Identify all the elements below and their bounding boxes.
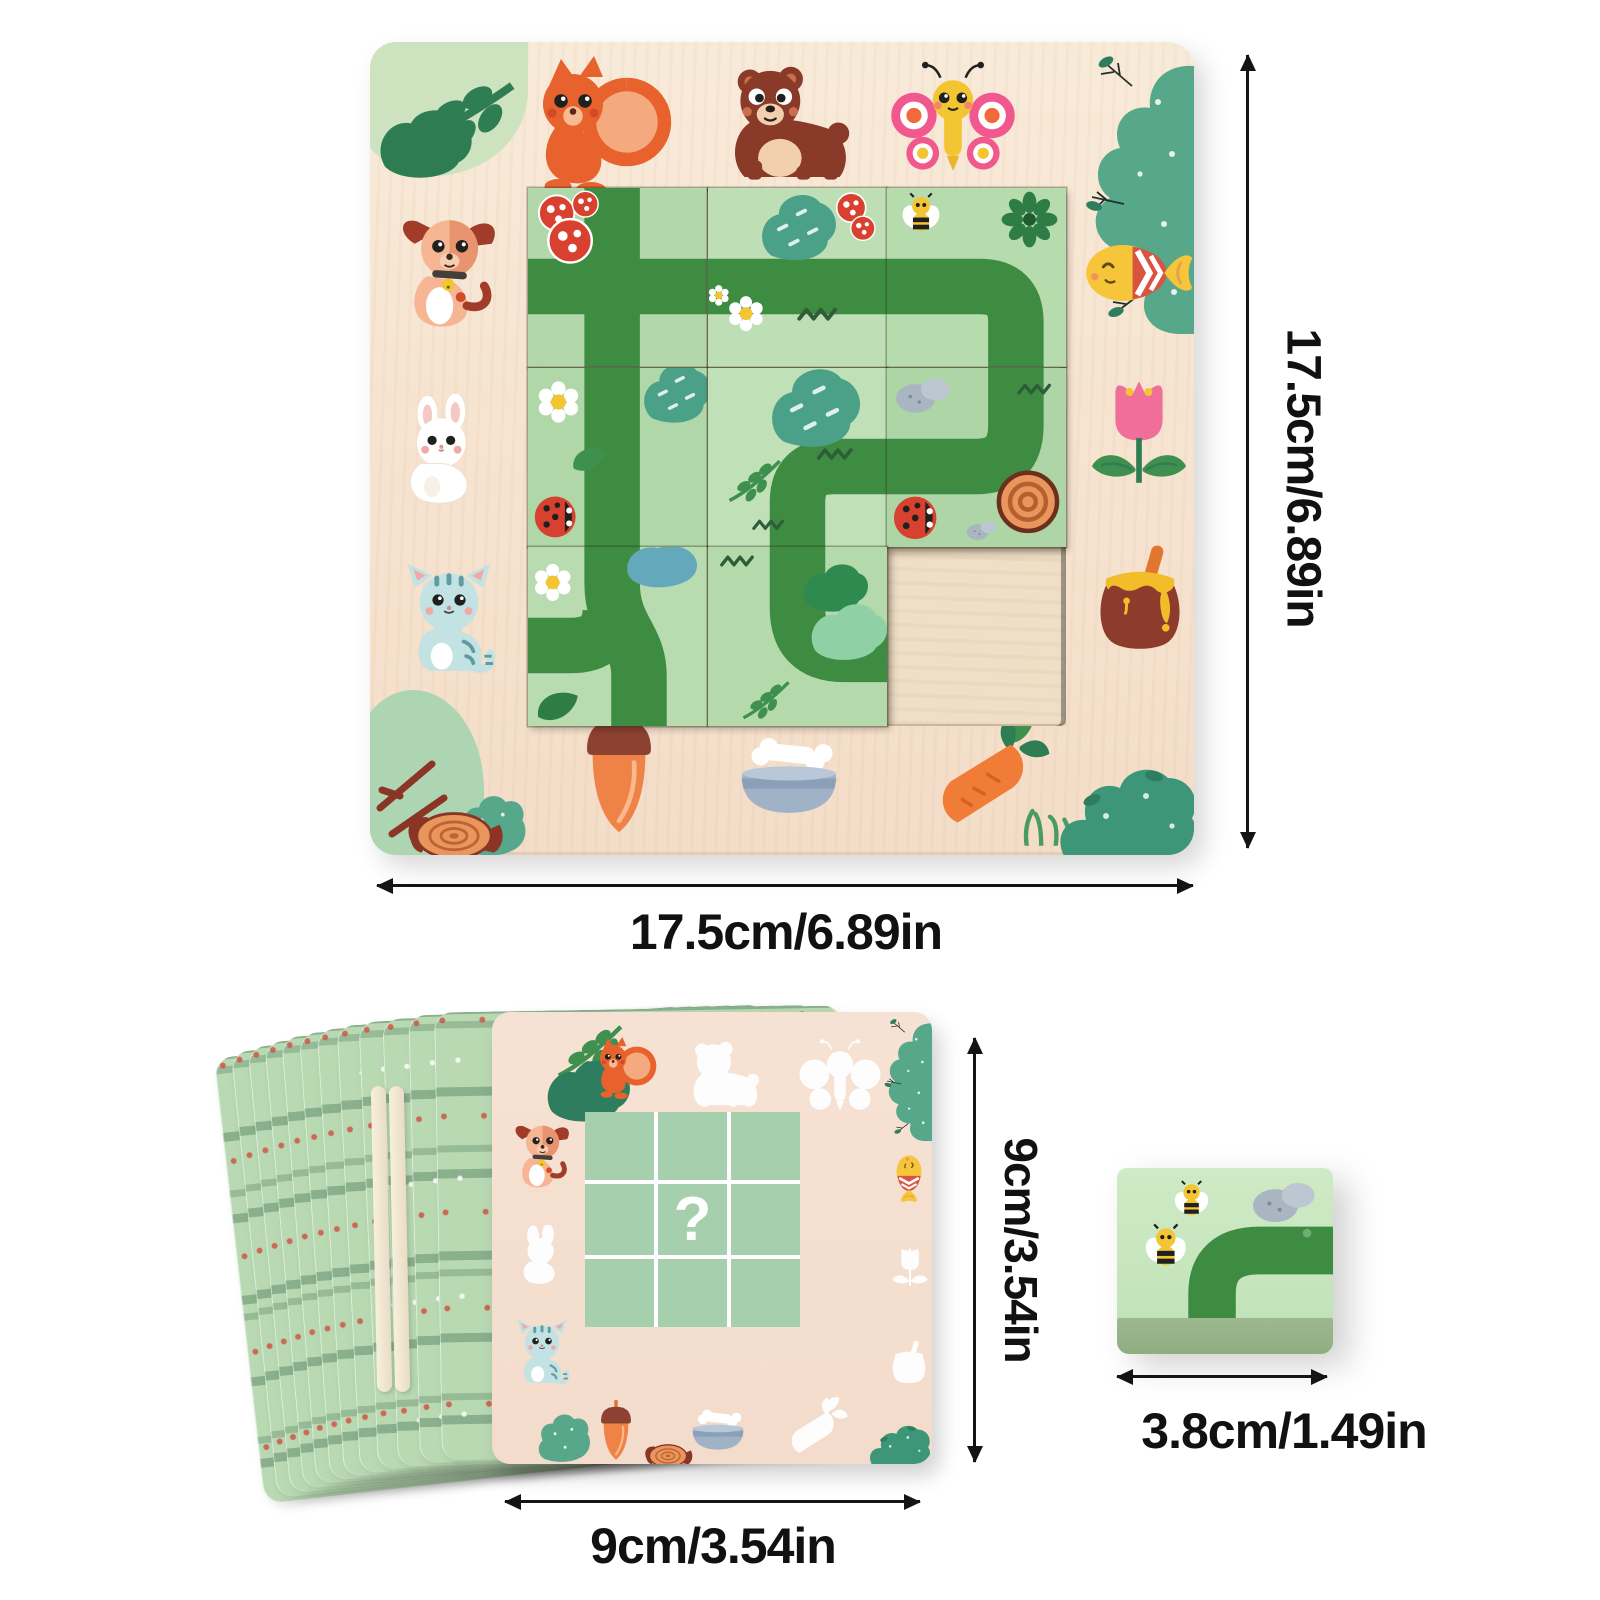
question-mark: ?	[674, 1184, 712, 1255]
card-width-arrow	[505, 1500, 920, 1503]
maze-tile-r1c3	[887, 188, 1066, 367]
bee-icon	[1142, 1224, 1190, 1265]
card-grid-cell	[731, 1184, 800, 1255]
card-grid-cell	[585, 1184, 654, 1255]
maze-tile-r1c2	[708, 188, 887, 367]
tulip-silhouette-icon	[888, 1238, 932, 1300]
tile-width-arrow	[1117, 1375, 1327, 1378]
tree-stump-icon	[642, 1442, 694, 1464]
card-grid-cell-question: ?	[658, 1184, 727, 1255]
bear-icon	[720, 58, 856, 198]
squirrel-icon	[592, 1032, 658, 1108]
card-height-label: 9cm/3.54in	[994, 1137, 1048, 1362]
card-grid-cell	[658, 1259, 727, 1327]
berry-bush-icon	[874, 1012, 932, 1142]
tile-width-label: 3.8cm/1.49in	[1141, 1402, 1426, 1460]
card-grid-cell	[585, 1112, 654, 1180]
board-height-arrow	[1246, 55, 1249, 848]
maze-tile-r2c1	[528, 368, 707, 547]
card-grid-cell	[731, 1112, 800, 1180]
card-grid-cell	[731, 1259, 800, 1327]
bee-icon	[1172, 1181, 1212, 1215]
puzzle-grid-recess	[528, 188, 1066, 726]
maze-tile-r3c2	[708, 547, 887, 726]
dog-bowl-bone-icon	[718, 732, 860, 828]
cat-icon	[506, 1304, 578, 1404]
tulip-icon	[1080, 372, 1194, 504]
butterfly-icon	[890, 60, 1016, 176]
rabbit-icon	[388, 370, 504, 534]
carrot-silhouette-icon	[784, 1394, 850, 1464]
board-width-label: 17.5cm/6.89in	[630, 903, 942, 961]
product-dimension-image: 17.5cm/6.89in 17.5cm/6.89in	[0, 0, 1600, 1600]
single-puzzle-tile	[1117, 1168, 1333, 1354]
squirrel-icon	[525, 56, 675, 206]
tile-side	[1117, 1318, 1333, 1354]
pebbles-icon	[1253, 1183, 1315, 1222]
puzzle-board	[370, 42, 1194, 855]
small-bush-icon	[532, 1408, 596, 1464]
card-grid-cell	[658, 1112, 727, 1180]
dog-icon	[390, 200, 514, 352]
tree-stump-icon	[400, 808, 508, 855]
fish-icon	[894, 1150, 924, 1204]
honey-pot-icon	[1084, 540, 1194, 664]
dark-leaves-icon	[376, 106, 472, 184]
acorn-icon	[594, 1398, 638, 1464]
challenge-card-front: ?	[492, 1012, 932, 1464]
card-width-label: 9cm/3.54in	[590, 1517, 836, 1575]
maze-tile-r3c1	[528, 547, 707, 726]
maze-tile-r2c3	[887, 368, 1066, 547]
corner-bush-icon	[866, 1388, 932, 1464]
fish-icon	[1074, 240, 1194, 306]
board-height-label: 17.5cm/6.89in	[1276, 328, 1331, 627]
card-height-arrow	[973, 1038, 976, 1462]
empty-tile-slot	[887, 547, 1066, 726]
cat-icon	[388, 534, 510, 710]
corner-bush-bottom-right-icon	[1056, 684, 1194, 855]
card-grid-cell	[585, 1259, 654, 1327]
board-width-arrow	[377, 884, 1193, 887]
dog-icon	[508, 1112, 580, 1204]
bear-silhouette-icon	[672, 1038, 776, 1116]
tile-face	[1117, 1168, 1333, 1320]
maze-tile-r1c1	[528, 188, 707, 367]
card-grid: ?	[585, 1112, 800, 1327]
maze-tile-r2c2	[708, 368, 887, 547]
rabbit-silhouette-icon	[512, 1210, 574, 1302]
